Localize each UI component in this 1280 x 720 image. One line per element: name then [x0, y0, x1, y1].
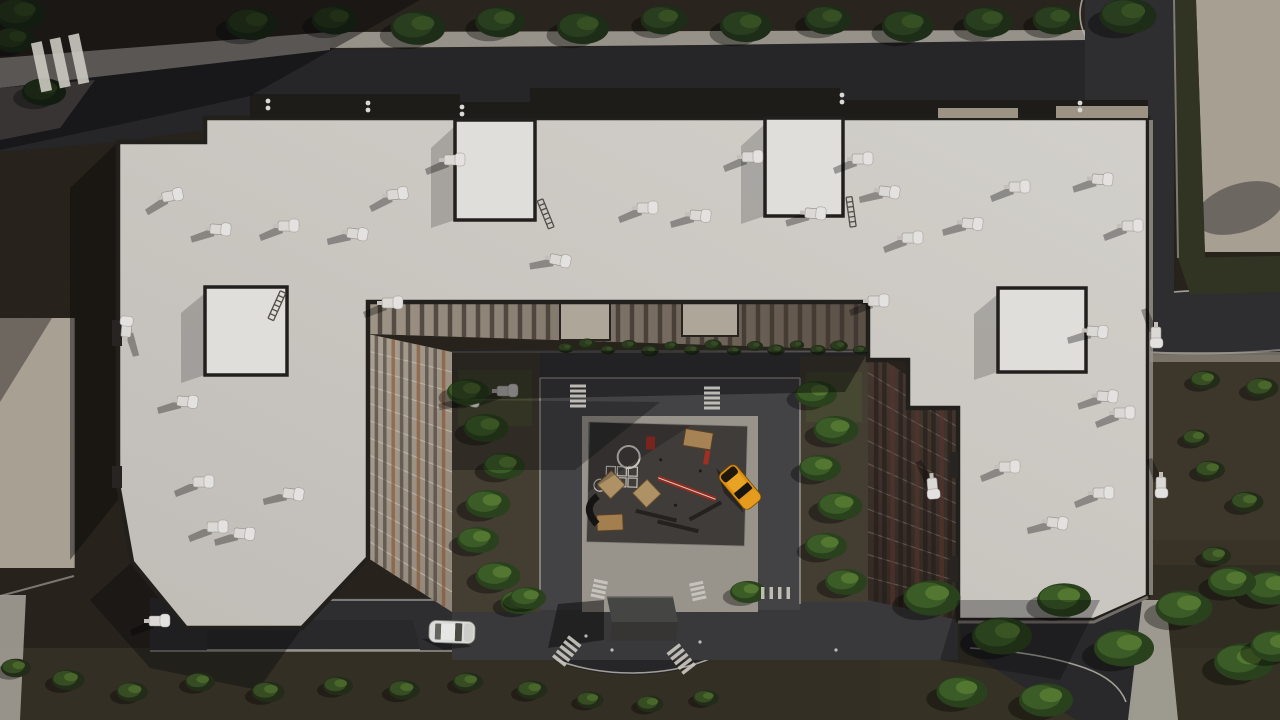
- pedestrian-dot: [610, 648, 613, 651]
- global-grain: [0, 0, 1280, 720]
- pedestrian-dot: [834, 648, 837, 651]
- pedestrian-dot: [584, 634, 587, 637]
- aerial-render: [0, 0, 1280, 720]
- pedestrian-dot: [698, 640, 701, 643]
- aerial-render-stage: [0, 0, 1280, 720]
